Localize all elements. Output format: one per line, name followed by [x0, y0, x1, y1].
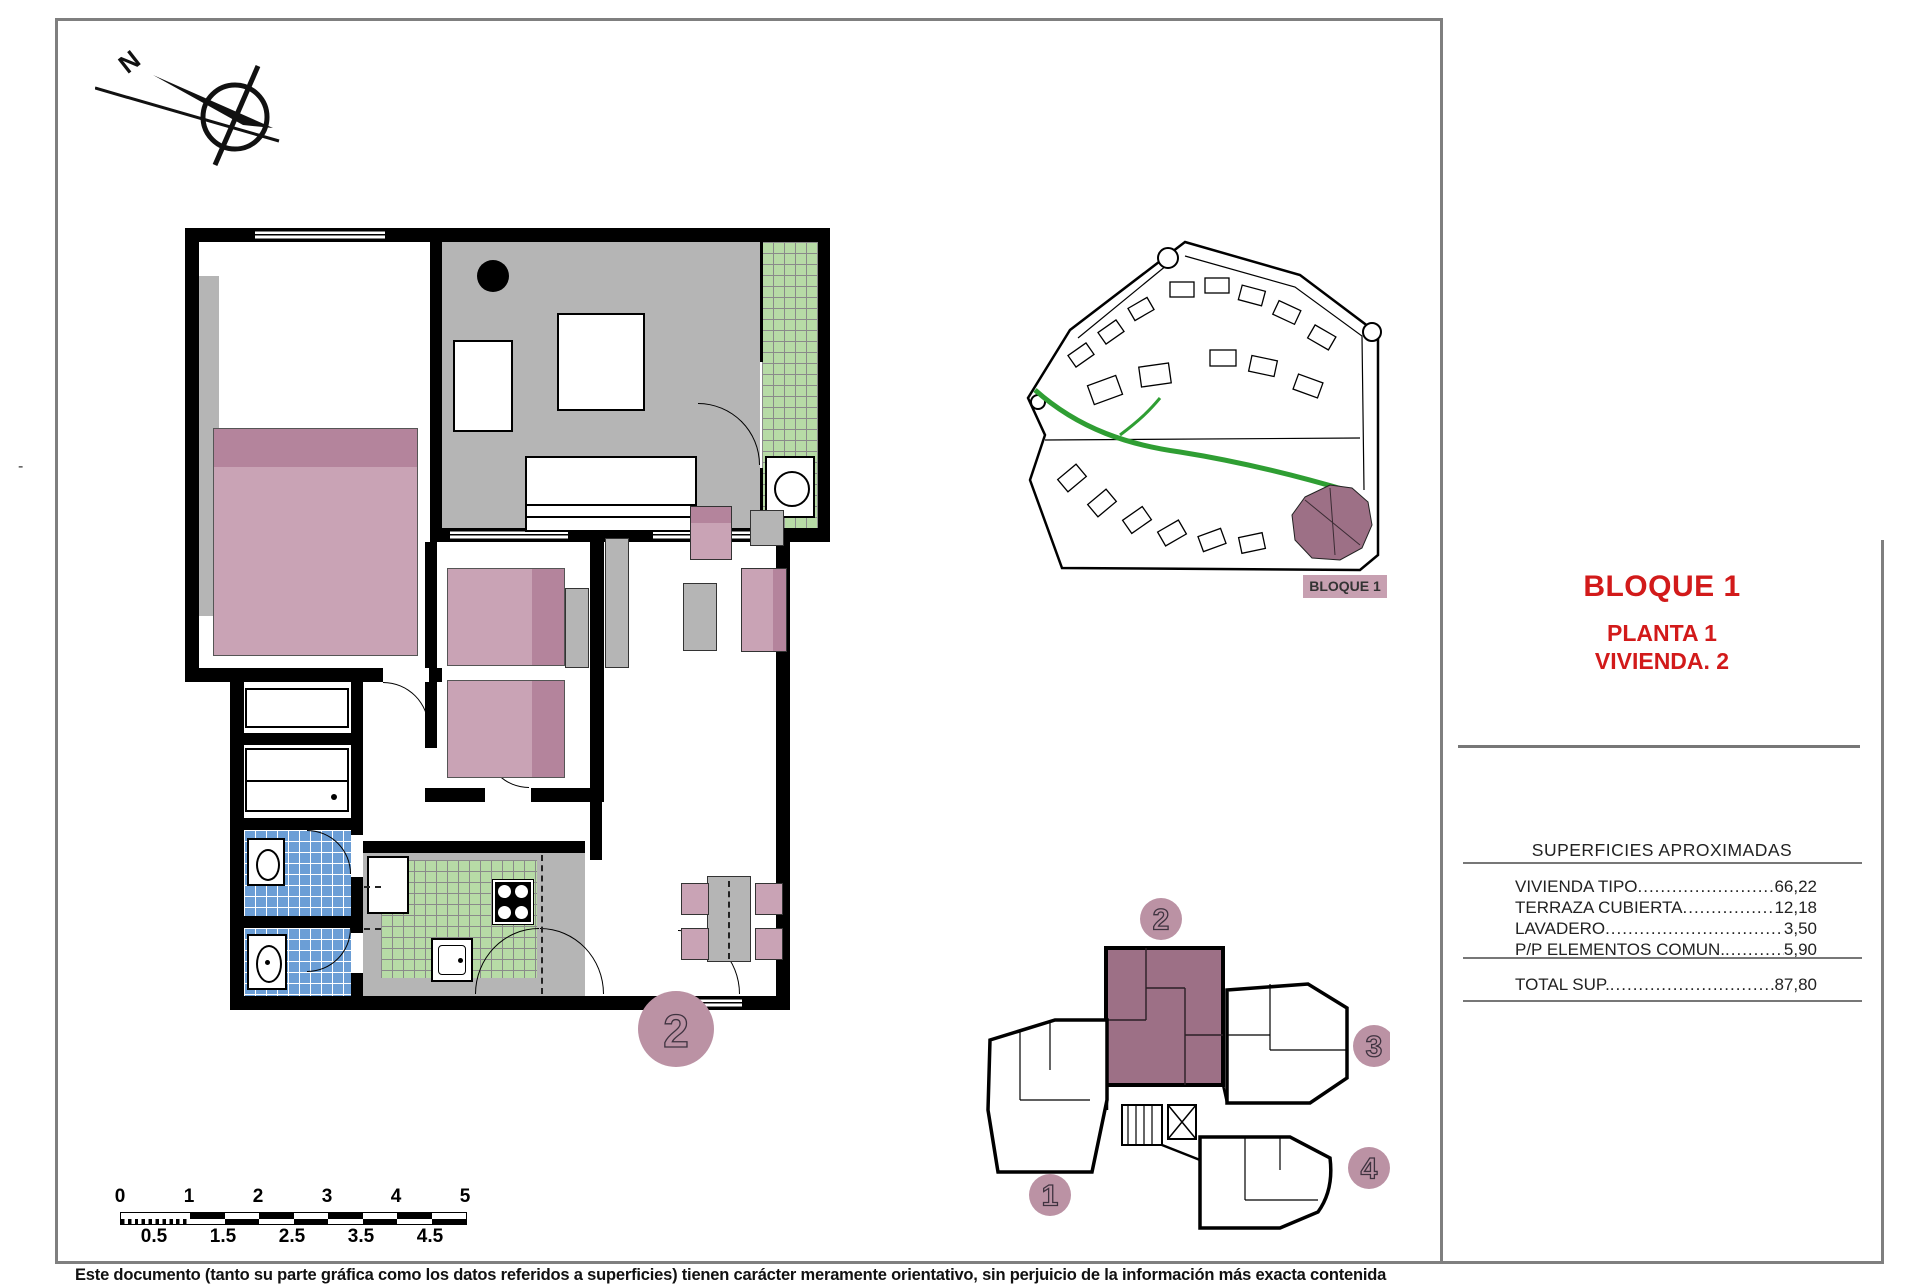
key-unit-3 [1227, 984, 1347, 1103]
sheet-border-right [1881, 540, 1884, 1264]
north-label: N [113, 44, 146, 79]
svg-text:1: 1 [1042, 1180, 1059, 1213]
terrace-bench [525, 456, 697, 532]
dining-table [707, 876, 751, 962]
dining-chair [755, 883, 783, 915]
single-bed-2 [447, 680, 565, 778]
key-unit-1 [988, 1020, 1107, 1172]
svg-text:3: 3 [1366, 1031, 1383, 1064]
plan-sheet: { "compass": { "north_label": "N" }, "ti… [0, 0, 1920, 1280]
hall-door-right-arc [540, 928, 604, 994]
counter-dashed-line [541, 855, 543, 994]
tv-unit [605, 538, 629, 668]
scale-bar-graphic [120, 1212, 467, 1225]
bedroom-window [255, 230, 385, 240]
side-table [750, 510, 784, 546]
nightstand [565, 588, 589, 668]
terrace-plant [477, 260, 509, 292]
floor-subtitle: PLANTA 1 [1443, 620, 1881, 647]
bedroom1-door-arc [383, 682, 429, 728]
coffee-table [683, 583, 717, 651]
kitchen-sink [431, 938, 473, 982]
sheet-border-bottom [55, 1261, 1884, 1264]
table-row: VIVIENDA TIPO 66,22 [1463, 877, 1862, 897]
bathtub [245, 748, 349, 812]
bathroom-sink [247, 934, 287, 990]
single-bed-1 [447, 568, 565, 666]
sofa [741, 568, 787, 652]
dining-chair [755, 928, 783, 960]
svg-text:2: 2 [1153, 904, 1170, 937]
site-plan: BLOQUE 1 [1000, 230, 1400, 610]
dining-chair [681, 883, 709, 915]
margin-mark: - [18, 458, 23, 476]
svg-text:4: 4 [1361, 1153, 1378, 1186]
bloque1-label: BLOQUE 1 [1309, 578, 1381, 594]
floor-plan [185, 228, 830, 1010]
surfaces-table-header: SUPERFICIES APROXIMADAS [1443, 840, 1881, 861]
svg-text:2: 2 [663, 1005, 689, 1057]
table-row: TERRAZA CUBIERTA 12,18 [1463, 898, 1862, 918]
dwelling-subtitle: VIVIENDA. 2 [1443, 648, 1881, 675]
key-unit-2 [1106, 948, 1223, 1085]
block-title: BLOQUE 1 [1443, 570, 1881, 604]
north-compass: N [95, 40, 295, 180]
sheet-border-left [55, 18, 58, 1264]
table-total-row: TOTAL SUP. 87,80 [1463, 975, 1862, 995]
armchair [690, 506, 732, 560]
fridge [367, 856, 409, 914]
disclaimer-text: Este documento (tanto su parte gráfica c… [75, 1266, 1875, 1285]
key-plan: 1 2 3 4 [950, 870, 1390, 1250]
washing-machine [765, 456, 815, 518]
dining-chair [681, 928, 709, 960]
counter-dashed-line [364, 928, 381, 930]
sheet-border-top [55, 18, 1443, 21]
stove [493, 880, 533, 924]
unit-number-badge: 2 [637, 990, 715, 1068]
title-divider [1458, 745, 1860, 748]
terrace-table [557, 313, 645, 411]
table-row: LAVADERO 3,50 [1463, 919, 1862, 939]
key-unit-4 [1200, 1137, 1331, 1228]
terrace-side-table [453, 340, 513, 432]
double-bed [213, 428, 418, 656]
counter-dashed-line [364, 886, 381, 888]
hall-closet [245, 688, 349, 728]
toilet [247, 838, 285, 886]
